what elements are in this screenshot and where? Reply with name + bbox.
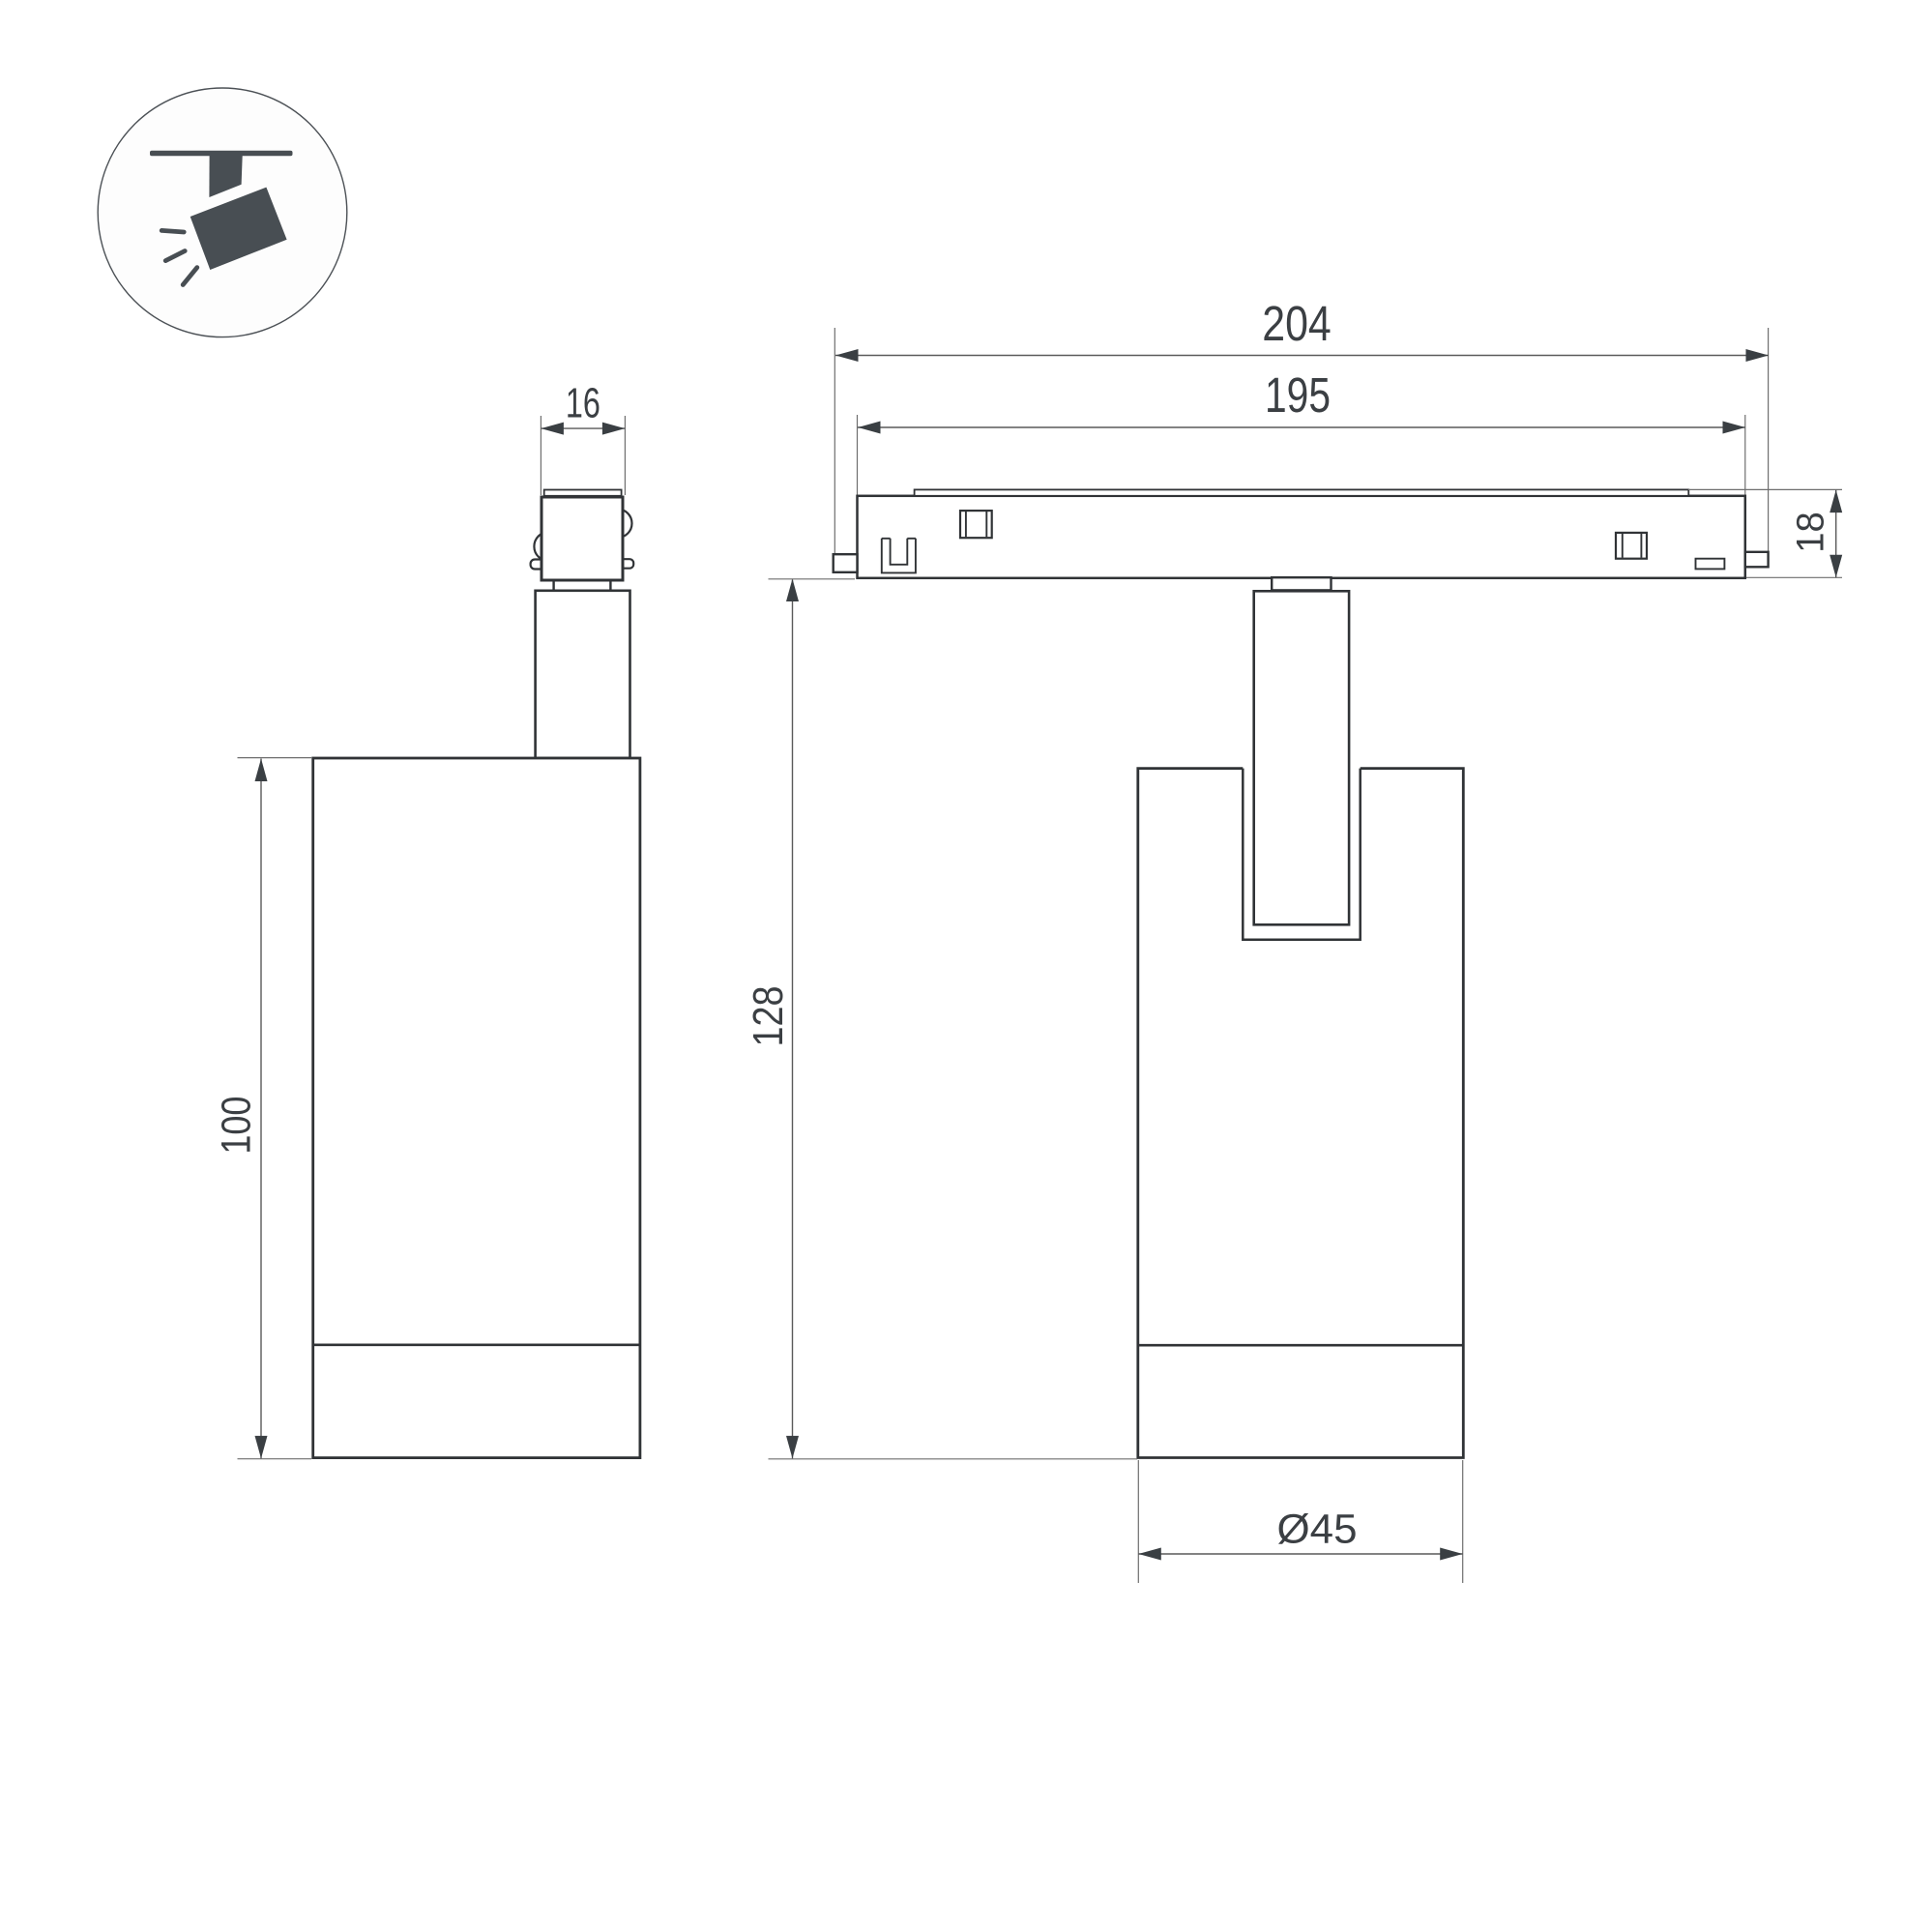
svg-text:128: 128 xyxy=(745,986,792,1047)
svg-text:100: 100 xyxy=(214,1097,260,1155)
svg-text:Ø45: Ø45 xyxy=(1277,1506,1358,1552)
svg-text:195: 195 xyxy=(1265,367,1331,423)
svg-text:18: 18 xyxy=(1790,512,1832,553)
svg-text:16: 16 xyxy=(566,379,600,426)
svg-text:204: 204 xyxy=(1262,296,1332,351)
